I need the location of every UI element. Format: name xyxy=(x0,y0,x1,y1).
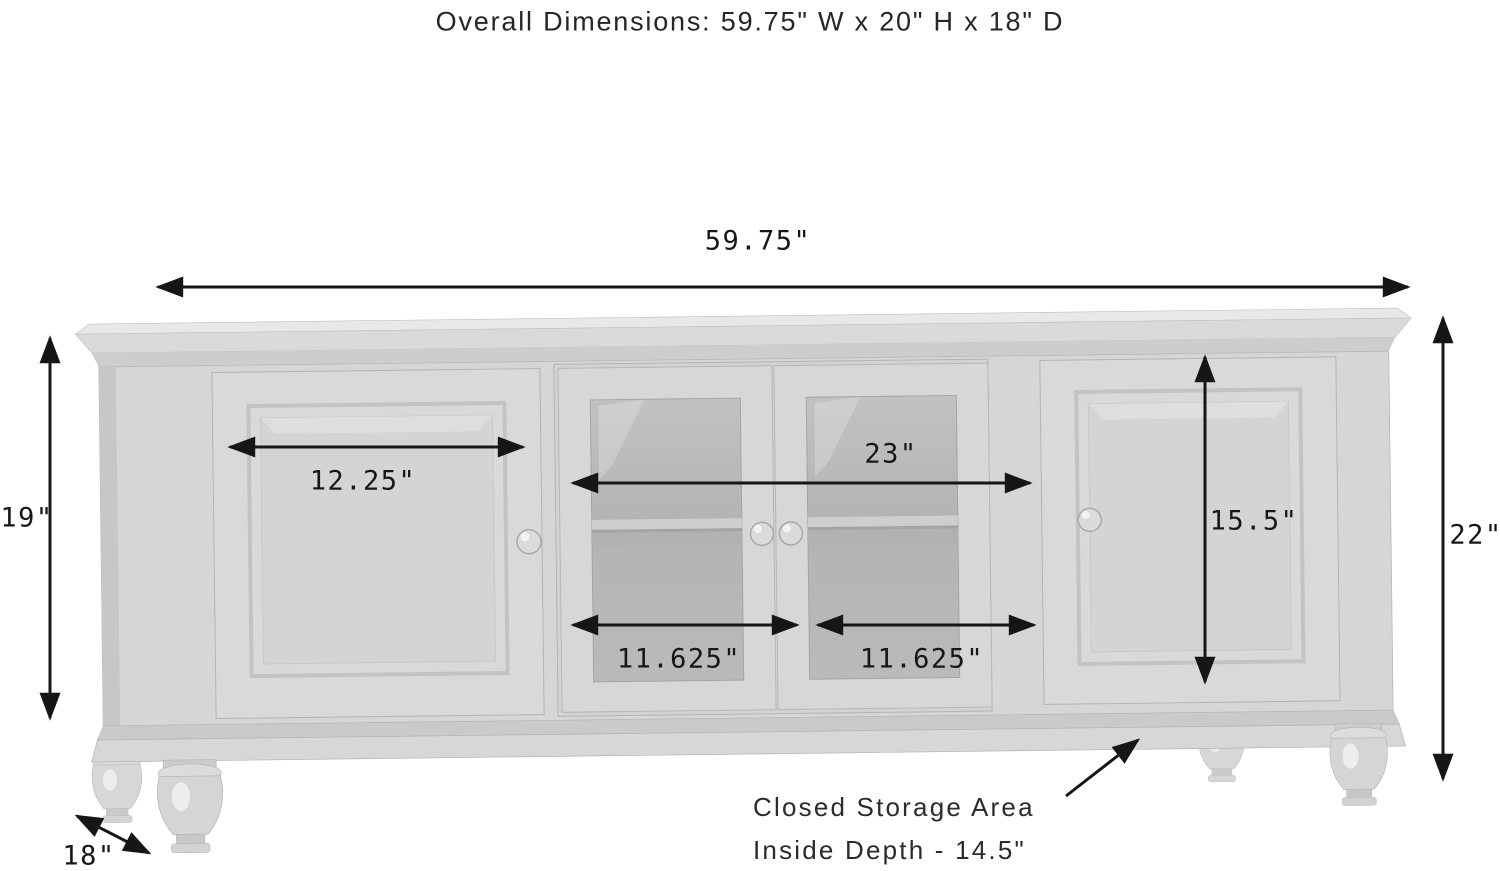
bun-foot-front-right xyxy=(1330,723,1388,806)
storage-note-line2: Inside Depth - 14.5" xyxy=(753,829,1035,871)
tv-stand-cabinet xyxy=(75,308,1417,854)
glass-door-right-width-label: 11.625" xyxy=(860,644,984,675)
left-door-knob xyxy=(517,530,541,554)
storage-note-line1: Closed Storage Area xyxy=(753,786,1035,829)
glass-door-left-width-label: 11.625" xyxy=(617,644,741,675)
bun-foot-front-left xyxy=(157,759,223,853)
right-door-height-label: 15.5" xyxy=(1210,506,1299,537)
right-height-label: 22" xyxy=(1449,520,1500,551)
overall-dimensions-title: Overall Dimensions: 59.75" W x 20" H x 1… xyxy=(436,7,1065,38)
tv-stand-illustration xyxy=(0,0,1500,871)
center-opening-width-label: 23" xyxy=(864,439,917,470)
storage-note: Closed Storage Area Inside Depth - 14.5" xyxy=(753,786,1035,871)
right-door-knob xyxy=(1078,508,1101,531)
overall-width-label: 59.75" xyxy=(705,226,812,257)
left-door-width-label: 12.25" xyxy=(310,466,417,497)
left-height-label: 19" xyxy=(0,503,53,534)
product-dimension-diagram: Overall Dimensions: 59.75" W x 20" H x 1… xyxy=(0,0,1500,871)
depth-label: 18" xyxy=(62,841,115,871)
left-cabinet-door xyxy=(212,369,544,719)
